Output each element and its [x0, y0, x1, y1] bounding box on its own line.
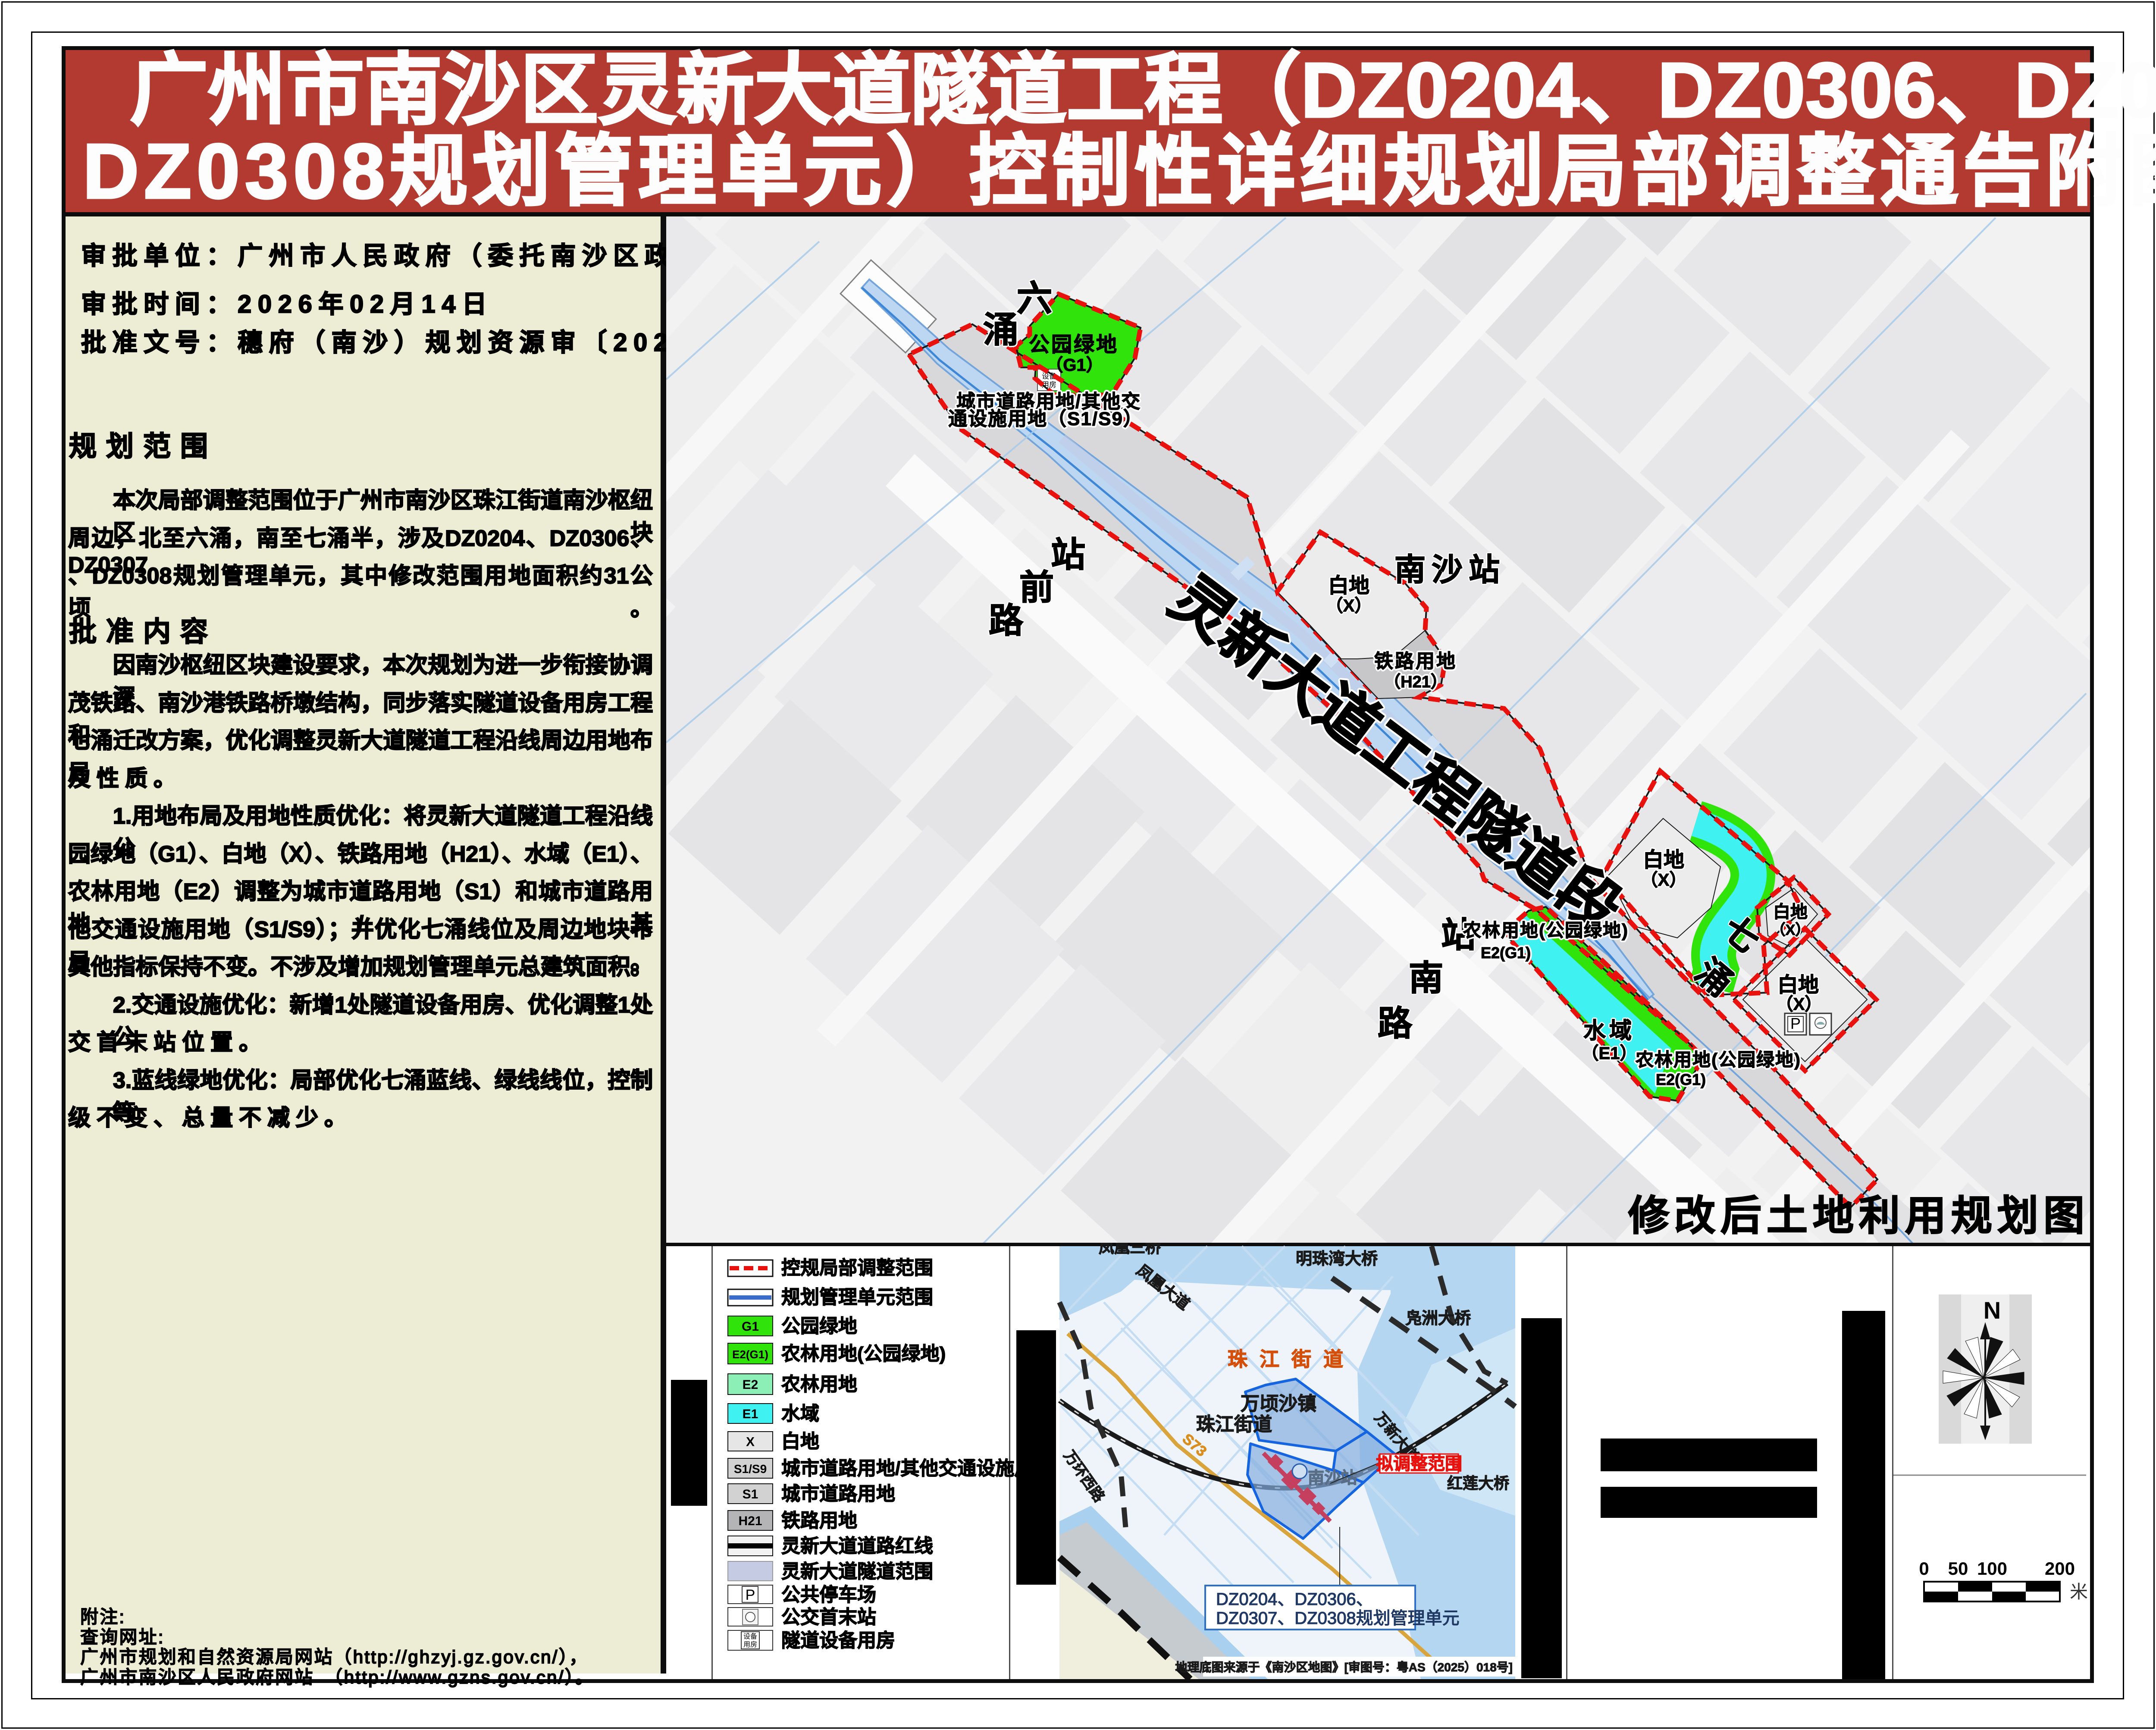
svg-text:E2(G1): E2(G1)	[1656, 1071, 1706, 1088]
svg-text:路: 路	[1378, 1004, 1413, 1043]
svg-text:S1: S1	[743, 1487, 758, 1501]
svg-text:铁路用地: 铁路用地	[1374, 651, 1457, 672]
svg-text:用房: 用房	[1042, 381, 1056, 389]
svg-text:E1: E1	[743, 1407, 758, 1421]
svg-text:S1/S9: S1/S9	[734, 1462, 767, 1476]
svg-text:用房: 用房	[743, 1641, 757, 1649]
svg-text:（X）: （X）	[1641, 871, 1687, 890]
svg-text:珠江街道: 珠江街道	[1228, 1348, 1355, 1370]
svg-text:凤凰三桥: 凤凰三桥	[1099, 1243, 1161, 1256]
svg-text:灵新大道隧道范围: 灵新大道隧道范围	[781, 1561, 933, 1582]
svg-text:农林用地(公园绿地): 农林用地(公园绿地)	[781, 1343, 946, 1364]
svg-text:G1: G1	[742, 1319, 759, 1334]
svg-text:公共停车场: 公共停车场	[781, 1584, 876, 1605]
svg-text:农林用地(公园绿地): 农林用地(公园绿地)	[1636, 1050, 1801, 1070]
svg-text:（E1）: （E1）	[1582, 1044, 1637, 1063]
svg-text:公园绿地: 公园绿地	[1029, 333, 1119, 356]
svg-text:（X）: （X）	[1771, 921, 1810, 938]
svg-text:DZ0204、DZ0306、: DZ0204、DZ0306、	[1216, 1590, 1373, 1609]
svg-text:白地: 白地	[781, 1431, 819, 1452]
svg-text:隧道设备用房: 隧道设备用房	[781, 1630, 895, 1651]
svg-text:E2: E2	[743, 1378, 758, 1392]
svg-text:铁路用地: 铁路用地	[781, 1510, 857, 1531]
svg-text:前: 前	[1019, 568, 1054, 607]
svg-text:50: 50	[1948, 1558, 1968, 1579]
svg-text:设备: 设备	[743, 1633, 757, 1640]
svg-text:站: 站	[1051, 536, 1085, 574]
svg-text:0: 0	[1919, 1558, 1929, 1579]
svg-text:白地: 白地	[1643, 849, 1684, 871]
svg-text:农林用地: 农林用地	[781, 1374, 857, 1395]
svg-text:P: P	[1790, 1015, 1801, 1032]
svg-text:H21: H21	[738, 1514, 762, 1528]
svg-text:修改后土地利用规划图: 修改后土地利用规划图	[1628, 1193, 2090, 1239]
svg-text:明珠湾大桥: 明珠湾大桥	[1296, 1250, 1378, 1268]
svg-text:100: 100	[1977, 1558, 2007, 1579]
svg-text:白地: 白地	[1773, 903, 1808, 921]
svg-text:（X）: （X）	[1326, 596, 1372, 615]
svg-text:六: 六	[1017, 279, 1052, 318]
svg-text:白地: 白地	[1328, 574, 1369, 597]
svg-text:通设施用地（S1/S9）: 通设施用地（S1/S9）	[948, 408, 1143, 429]
svg-text:南: 南	[1409, 959, 1443, 997]
svg-text:N: N	[1984, 1297, 2001, 1324]
svg-text:米: 米	[2070, 1582, 2088, 1602]
svg-text:地理底图来源于《南沙区地图》[审图号：粤AS（2025）01: 地理底图来源于《南沙区地图》[审图号：粤AS（2025）018号]	[1175, 1660, 1513, 1674]
svg-text:公园绿地: 公园绿地	[781, 1316, 857, 1337]
svg-text:红莲大桥: 红莲大桥	[1447, 1474, 1509, 1492]
svg-text:南沙站: 南沙站	[1395, 553, 1506, 587]
svg-text:X: X	[746, 1435, 755, 1449]
svg-text:灵新大道道路红线: 灵新大道道路红线	[781, 1536, 933, 1557]
svg-text:白地: 白地	[1777, 974, 1819, 997]
svg-text:200: 200	[2045, 1558, 2075, 1579]
svg-text:涌: 涌	[983, 310, 1018, 350]
svg-text:南沙站: 南沙站	[1308, 1469, 1357, 1487]
svg-text:水域: 水域	[1583, 1019, 1635, 1044]
svg-text:万顷沙镇: 万顷沙镇	[1241, 1393, 1316, 1414]
svg-text:（H21）: （H21）	[1384, 673, 1447, 691]
svg-text:珠江街道: 珠江街道	[1196, 1414, 1272, 1435]
svg-text:（X）: （X）	[1776, 995, 1822, 1014]
svg-text:公交首末站: 公交首末站	[781, 1607, 876, 1628]
svg-text:拟调整范围: 拟调整范围	[1376, 1454, 1462, 1473]
svg-text:DZ0307、DZ0308规划管理单元: DZ0307、DZ0308规划管理单元	[1216, 1609, 1460, 1628]
svg-text:路: 路	[989, 602, 1024, 640]
svg-text:规划管理单元范围: 规划管理单元范围	[781, 1287, 933, 1308]
svg-text:E2(G1): E2(G1)	[1481, 944, 1531, 962]
svg-text:农林用地(公园绿地): 农林用地(公园绿地)	[1463, 920, 1629, 940]
svg-text:P: P	[746, 1587, 755, 1603]
svg-text:城市道路用地: 城市道路用地	[781, 1483, 895, 1504]
svg-text:控规局部调整范围: 控规局部调整范围	[781, 1257, 933, 1279]
svg-text:水域: 水域	[781, 1403, 819, 1424]
svg-text:（G1）: （G1）	[1046, 356, 1103, 375]
svg-text:城市道路用地/其他交通设施用地: 城市道路用地/其他交通设施用地	[781, 1458, 1052, 1479]
svg-text:凫洲大桥: 凫洲大桥	[1405, 1310, 1471, 1328]
svg-text:E2(G1): E2(G1)	[732, 1348, 768, 1361]
